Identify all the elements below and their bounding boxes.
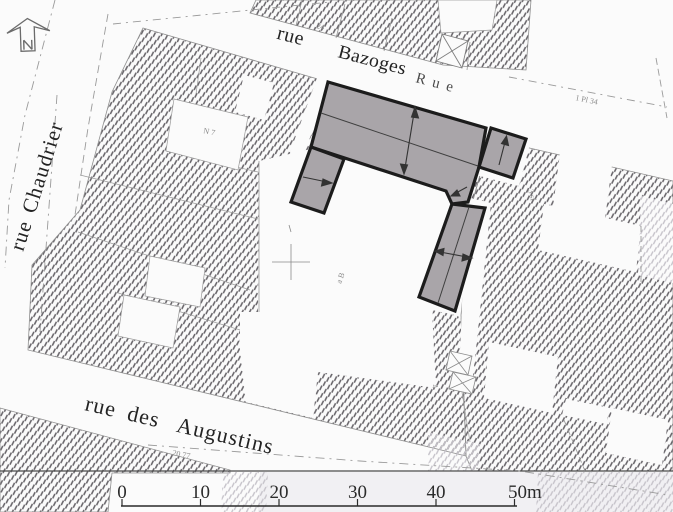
svg-text:40: 40	[427, 482, 446, 503]
svg-text:0: 0	[117, 482, 127, 503]
svg-text:30: 30	[348, 482, 367, 503]
svg-text:20: 20	[270, 482, 289, 503]
svg-text:10: 10	[191, 482, 210, 503]
svg-text:50m: 50m	[508, 482, 542, 503]
